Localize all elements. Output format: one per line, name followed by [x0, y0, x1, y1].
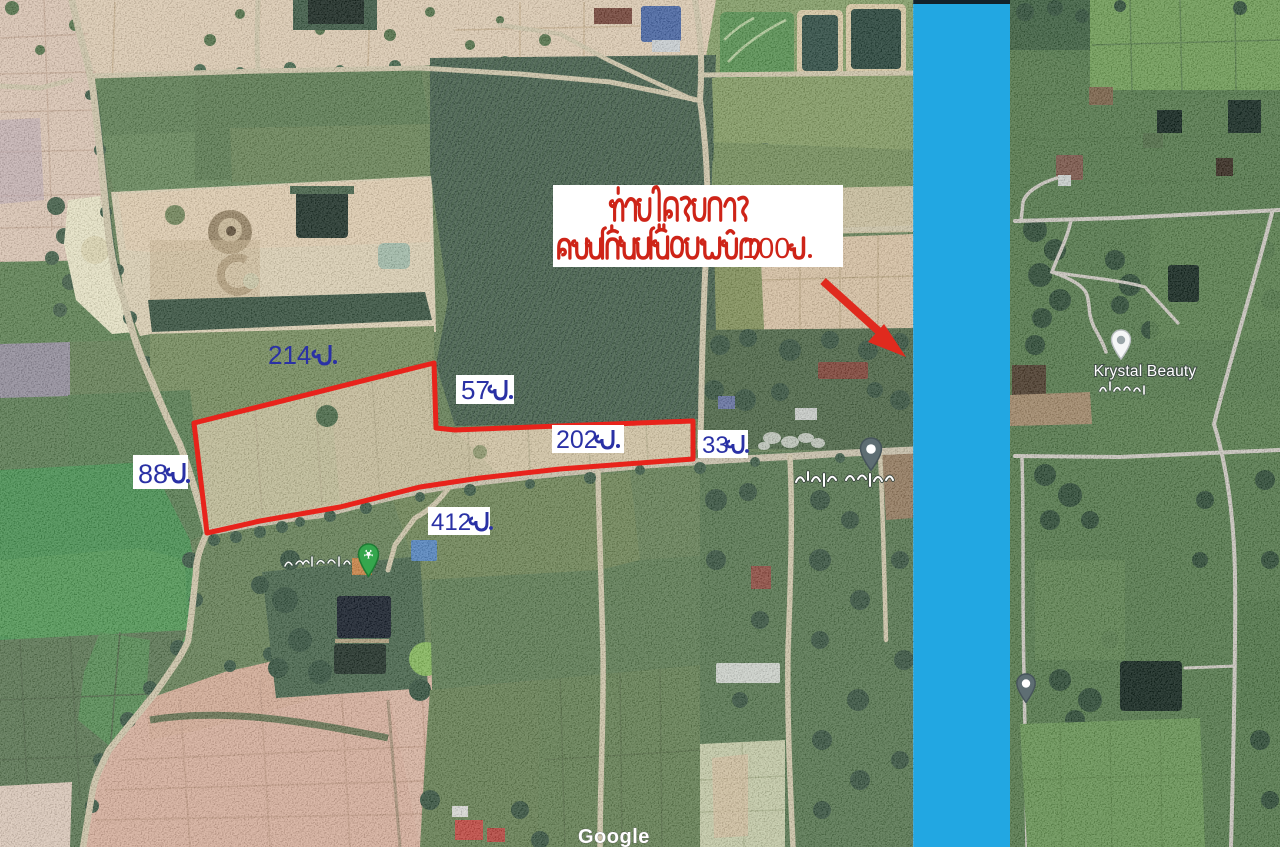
svg-text:Krystal Beauty: Krystal Beauty: [1094, 363, 1197, 380]
svg-text:202: 202: [556, 426, 598, 454]
svg-text:88: 88: [138, 459, 168, 489]
svg-text:214: 214: [268, 340, 311, 370]
svg-text:412: 412: [431, 509, 471, 536]
svg-text:Google: Google: [578, 826, 650, 847]
svg-text:57: 57: [461, 375, 490, 405]
svg-text:100: 100: [742, 233, 790, 265]
svg-text:33: 33: [702, 432, 729, 459]
